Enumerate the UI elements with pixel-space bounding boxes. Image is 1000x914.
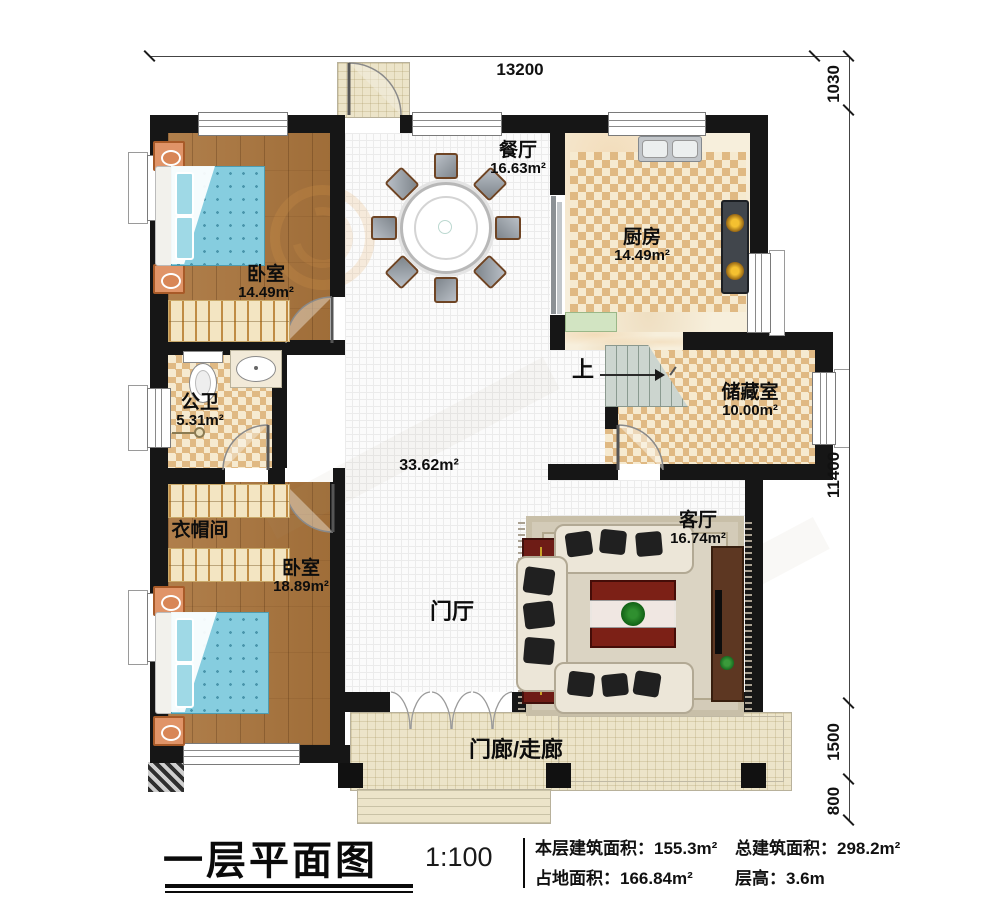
- sofa-cushion: [523, 637, 555, 666]
- room-label-kitchen: 厨房14.49m²: [572, 227, 712, 265]
- kitchen-counter: [565, 312, 617, 332]
- room-label-bedroom-top: 卧室14.49m²: [196, 264, 336, 302]
- window-sill: [769, 250, 785, 336]
- stove-burner: [726, 214, 744, 232]
- plan-scale: 1:100: [425, 842, 493, 873]
- window: [747, 253, 771, 333]
- room-label-storage: 储藏室10.00m²: [680, 382, 820, 420]
- wall: [605, 407, 618, 429]
- room-label-bedroom-bottom: 卧室18.89m²: [231, 558, 371, 596]
- stat-total-area: 总建筑面积：298.2m²: [735, 834, 900, 859]
- plant-icon: [720, 656, 734, 670]
- dimension-right-steps: 800: [824, 761, 844, 841]
- rug-fringe: [745, 522, 752, 712]
- window-sill: [128, 152, 148, 224]
- kitchen-sliding-door-panel: [557, 202, 562, 314]
- bedroom-top-door: [286, 297, 333, 344]
- nightstand: [153, 716, 185, 746]
- storage-door: [618, 425, 664, 471]
- porch-french-doors: [390, 692, 514, 732]
- wall: [550, 315, 565, 350]
- pillow: [175, 216, 194, 260]
- stat-floor-height: 层高：3.6m: [735, 864, 825, 889]
- hall-area-label: 33.62m²: [359, 457, 499, 475]
- wall: [400, 115, 412, 133]
- dimension-right-main: 11400: [824, 435, 844, 515]
- column: [546, 763, 571, 788]
- pillow: [175, 618, 194, 663]
- room-label-foyer: 门厅: [382, 600, 522, 625]
- room-label-cloakroom: 衣帽间: [130, 520, 270, 541]
- back-door: [349, 63, 403, 117]
- wall: [706, 115, 768, 133]
- sink-drain: [254, 366, 258, 370]
- bathroom-door: [223, 425, 269, 471]
- plant-icon: [621, 602, 645, 626]
- bedroom-bottom-door: [285, 484, 334, 533]
- sofa-cushion: [632, 670, 661, 698]
- wall: [150, 468, 225, 484]
- stairs-arrow-line: [600, 374, 658, 376]
- column: [338, 763, 363, 788]
- stat-land-area: 占地面积：166.84m²: [535, 864, 693, 889]
- room-label-porch: 门廊/走廊: [446, 738, 586, 763]
- sofa-cushion: [564, 530, 593, 557]
- sink-basin: [672, 140, 698, 158]
- sofa-cushion: [567, 671, 596, 698]
- toilet-tank: [183, 351, 223, 363]
- room-label-living: 客厅16.74m²: [628, 510, 768, 548]
- plan-title: 一层平面图: [163, 828, 378, 886]
- room-label-bathroom: 公卫5.31m²: [130, 392, 270, 430]
- sink-basin: [642, 140, 668, 158]
- title-underline: [165, 891, 413, 893]
- wall: [660, 464, 833, 480]
- title-divider: [523, 838, 525, 888]
- dimension-line-top: [150, 56, 850, 57]
- wall: [683, 332, 833, 350]
- wall: [815, 350, 833, 372]
- wall: [345, 692, 390, 712]
- window-sill: [128, 590, 148, 665]
- stove-burner: [726, 262, 744, 280]
- wall: [548, 464, 618, 480]
- dimension-top-width: 13200: [460, 60, 580, 80]
- dining-table-center: [438, 220, 452, 234]
- window: [608, 112, 706, 136]
- wall: [750, 133, 768, 253]
- stat-floor-area: 本层建筑面积：155.3m²: [535, 834, 717, 859]
- room-label-dining: 餐厅16.63m²: [448, 140, 588, 178]
- chair: [434, 277, 458, 303]
- window: [183, 743, 300, 765]
- nightstand: [153, 264, 185, 294]
- chair: [495, 216, 521, 240]
- wardrobe: [168, 300, 290, 342]
- sofa-cushion: [522, 566, 555, 596]
- wall: [268, 468, 285, 484]
- window: [198, 112, 288, 136]
- wall: [502, 115, 608, 133]
- floor-plan-page: 上: [0, 0, 1000, 914]
- dimension-right-top: 1030: [824, 44, 844, 124]
- dimension-line-right: [849, 56, 850, 822]
- kitchen-sliding-door: [551, 196, 556, 314]
- title-underline: [165, 884, 413, 888]
- sofa-cushion: [523, 600, 556, 629]
- stairs-up-label: 上: [572, 358, 594, 383]
- chair: [371, 216, 397, 240]
- wall: [150, 745, 183, 763]
- sofa-cushion: [599, 529, 627, 556]
- sofa-cushion: [601, 673, 629, 698]
- wardrobe: [168, 484, 290, 518]
- column: [741, 763, 766, 788]
- wall: [288, 115, 345, 133]
- pillow: [175, 663, 194, 708]
- pillow: [175, 172, 194, 216]
- tv-icon: [715, 590, 722, 654]
- entry-steps: [357, 789, 551, 824]
- window: [412, 112, 502, 136]
- masonry-pier: [148, 762, 184, 792]
- stairs-arrow-head: [655, 369, 665, 381]
